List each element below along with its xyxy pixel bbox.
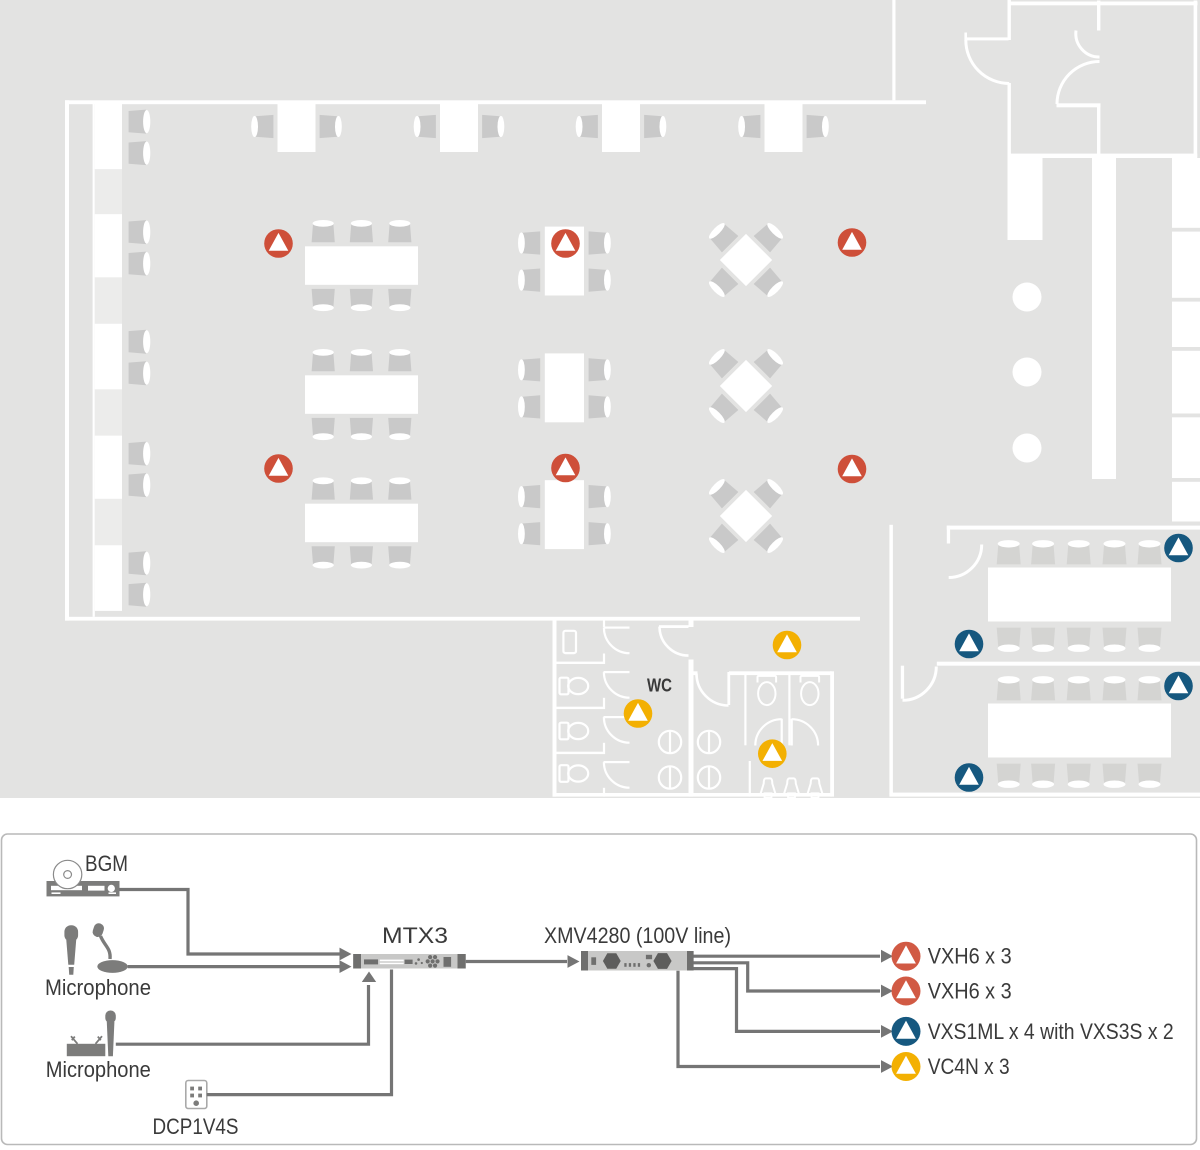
svg-text:Microphone: Microphone	[45, 975, 151, 1000]
svg-text:VXS1ML x 4 with VXS3S x 2: VXS1ML x 4 with VXS3S x 2	[928, 1019, 1174, 1044]
svg-text:VXH6 x 3: VXH6 x 3	[928, 944, 1012, 969]
svg-text:BGM: BGM	[85, 851, 128, 876]
svg-text:XMV4280 (100V line): XMV4280 (100V line)	[544, 923, 731, 948]
svg-text:Microphone: Microphone	[46, 1057, 151, 1082]
svg-text:VC4N x 3: VC4N x 3	[928, 1054, 1010, 1079]
svg-text:WC: WC	[647, 676, 672, 696]
svg-text:DCP1V4S: DCP1V4S	[153, 1114, 239, 1139]
svg-text:MTX3: MTX3	[382, 923, 448, 948]
svg-text:VXH6 x 3: VXH6 x 3	[928, 979, 1012, 1004]
